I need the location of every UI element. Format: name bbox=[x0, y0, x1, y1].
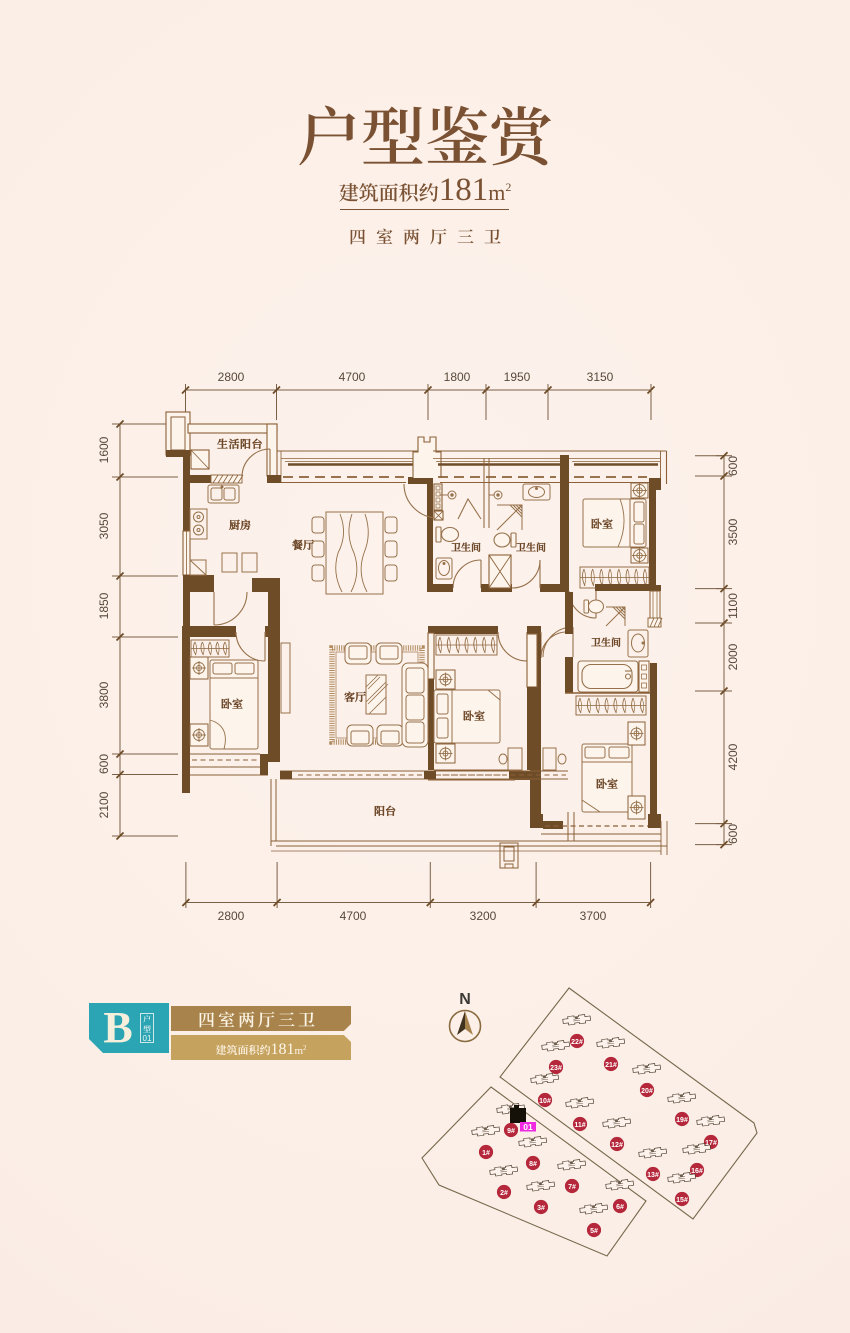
svg-text:12#: 12# bbox=[611, 1142, 623, 1149]
svg-text:9#: 9# bbox=[507, 1128, 515, 1135]
svg-text:21#: 21# bbox=[605, 1062, 617, 1069]
svg-text:20#: 20# bbox=[641, 1088, 653, 1095]
svg-text:3#: 3# bbox=[537, 1205, 545, 1212]
svg-text:22#: 22# bbox=[571, 1039, 583, 1046]
svg-text:2#: 2# bbox=[500, 1190, 508, 1197]
svg-text:13#: 13# bbox=[647, 1172, 659, 1179]
svg-text:15#: 15# bbox=[676, 1197, 688, 1204]
svg-text:N: N bbox=[459, 991, 471, 1008]
svg-text:16#: 16# bbox=[691, 1168, 703, 1175]
svg-text:7#: 7# bbox=[568, 1184, 576, 1191]
svg-text:11#: 11# bbox=[574, 1122, 585, 1129]
svg-text:1#: 1# bbox=[482, 1150, 490, 1157]
svg-text:10#: 10# bbox=[539, 1098, 551, 1105]
svg-text:19#: 19# bbox=[676, 1117, 688, 1124]
svg-text:6#: 6# bbox=[616, 1204, 624, 1211]
svg-text:8#: 8# bbox=[529, 1161, 537, 1168]
svg-text:5#: 5# bbox=[590, 1228, 598, 1235]
svg-text:23#: 23# bbox=[550, 1065, 562, 1072]
svg-text:01: 01 bbox=[523, 1122, 533, 1132]
